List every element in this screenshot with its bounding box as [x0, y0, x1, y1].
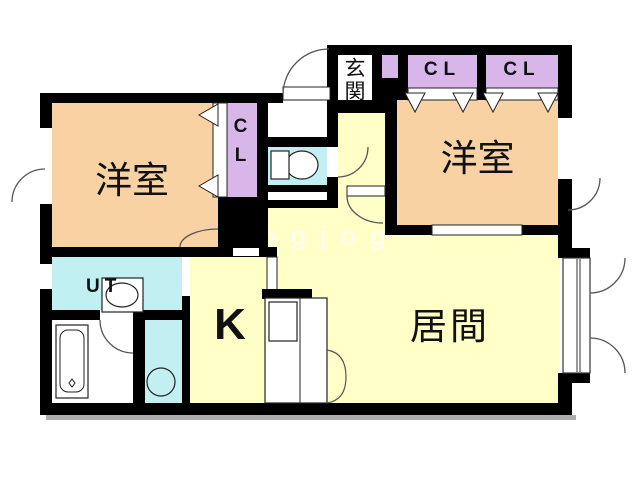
folding-door-icon — [405, 93, 425, 112]
hall-door-leaf — [347, 186, 385, 196]
bedroom-right-label: 洋室 — [397, 128, 558, 182]
folding-door-icon — [453, 93, 473, 112]
entrance-door-leaf — [283, 87, 330, 100]
closet-left-label: CL — [229, 116, 251, 174]
door-swing-arc — [590, 338, 625, 373]
toilet-tank-icon — [271, 151, 289, 179]
closet-top-1-label: CL — [408, 59, 477, 81]
folding-door-icon — [483, 93, 503, 112]
door-swing-arc — [338, 147, 368, 177]
sliding-door — [432, 225, 522, 235]
closet-top-2-label: CL — [486, 59, 558, 81]
toilet-icon — [286, 151, 318, 179]
swing-door-arc — [327, 377, 346, 403]
door-swing-arc — [100, 320, 133, 353]
basin-icon — [147, 368, 175, 396]
kitchen-label: K — [195, 300, 265, 350]
window-swing-arc — [568, 178, 600, 210]
window-swing-arc — [12, 169, 45, 202]
bathtub-inner-icon — [60, 330, 84, 392]
counter-stub-wall — [267, 257, 277, 291]
entrance-label: 玄関 — [338, 57, 368, 103]
living-label: 居間 — [380, 296, 520, 350]
floor-plan: jogjog — [0, 0, 640, 480]
door-swing-arc — [590, 258, 625, 293]
sink-icon — [269, 302, 297, 341]
utility-label: UT — [86, 276, 121, 298]
bedroom-left-label: 洋室 — [52, 150, 212, 204]
door-swing-arc — [347, 196, 383, 223]
folding-door-icon — [538, 93, 558, 112]
swing-door-arc — [327, 350, 346, 377]
folding-door-icon — [199, 104, 218, 126]
door-swing-arc — [180, 229, 218, 247]
